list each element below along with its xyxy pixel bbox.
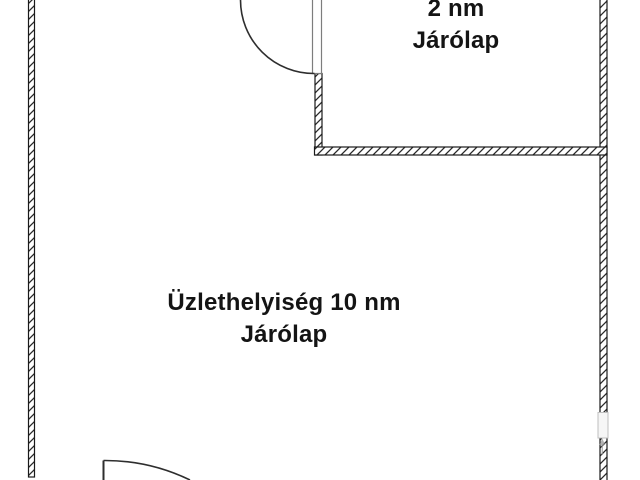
main-room-floor-text: Járólap (167, 319, 400, 351)
door-leaf-top (313, 0, 322, 74)
wall-right (600, 0, 607, 480)
small-room-floor-text: Járólap (413, 25, 500, 57)
small-room-area-text: 2 nm (413, 0, 500, 25)
door-swing-arc-bottom (104, 460, 191, 480)
wall-left (29, 0, 35, 477)
wall-small-room-bottom (315, 147, 608, 155)
floor-plan: 2 nm Járólap Üzlethelyiség 10 nm Járólap (0, 0, 640, 480)
main-room-area-text: Üzlethelyiség 10 nm (167, 287, 400, 319)
small-room-label: 2 nm Járólap (413, 0, 500, 57)
main-room-label: Üzlethelyiség 10 nm Járólap (167, 287, 400, 351)
door-swing-arc-top (241, 0, 315, 74)
window-marker (598, 413, 608, 439)
wall-small-room-left (315, 74, 322, 156)
floor-plan-drawing (0, 0, 640, 480)
